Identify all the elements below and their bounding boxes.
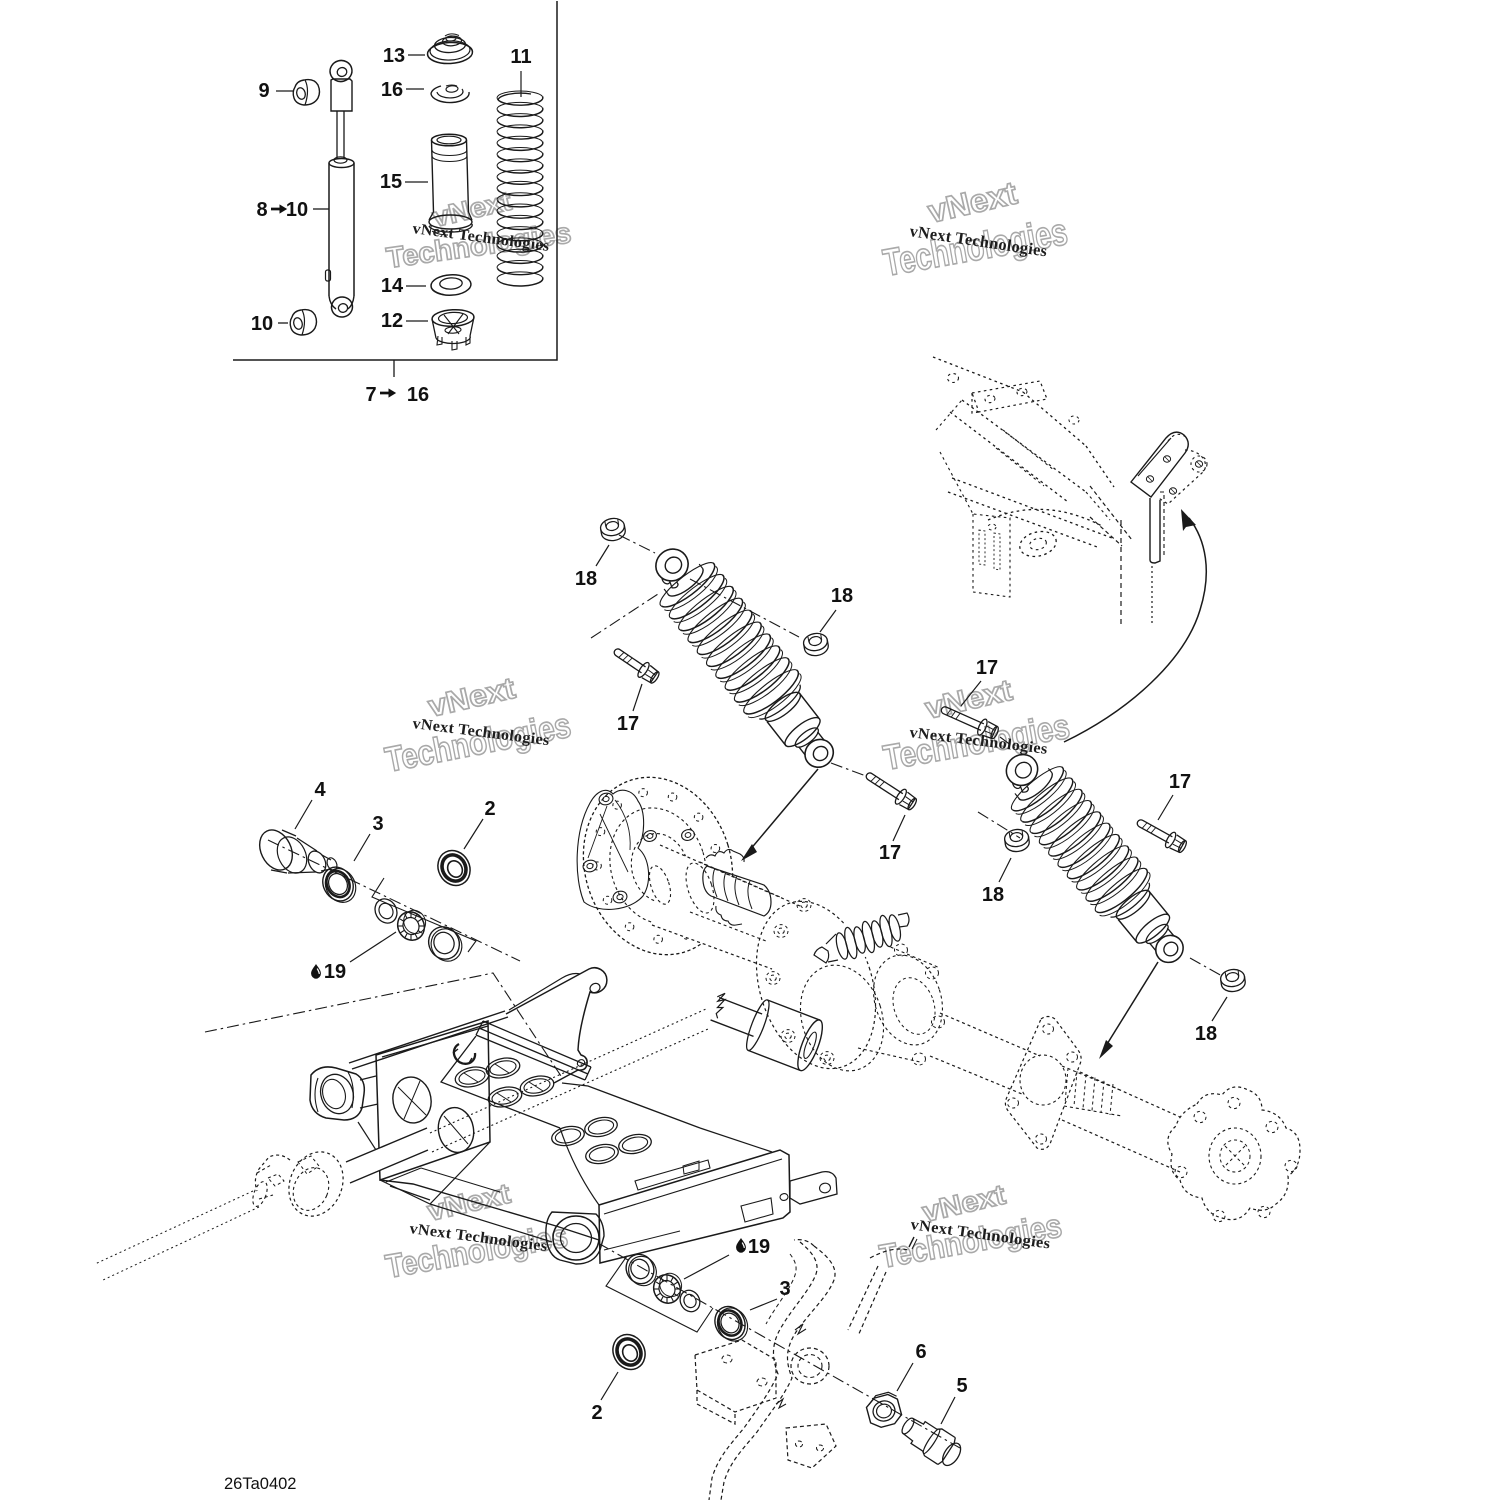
svg-text:13: 13 bbox=[383, 45, 405, 67]
svg-text:18: 18 bbox=[1195, 1023, 1217, 1045]
svg-text:19: 19 bbox=[748, 1236, 770, 1258]
svg-text:14: 14 bbox=[381, 275, 404, 297]
svg-text:4: 4 bbox=[314, 779, 326, 801]
svg-text:2: 2 bbox=[484, 798, 495, 820]
svg-text:2: 2 bbox=[591, 1402, 602, 1424]
svg-text:18: 18 bbox=[575, 568, 597, 590]
svg-text:12: 12 bbox=[381, 310, 403, 332]
svg-text:16: 16 bbox=[381, 79, 403, 101]
svg-text:15: 15 bbox=[380, 171, 402, 193]
svg-text:7: 7 bbox=[365, 384, 376, 406]
svg-text:18: 18 bbox=[982, 884, 1004, 906]
svg-text:17: 17 bbox=[976, 657, 998, 679]
svg-text:17: 17 bbox=[1169, 771, 1191, 793]
svg-text:3: 3 bbox=[779, 1278, 790, 1300]
svg-text:8: 8 bbox=[256, 199, 267, 221]
svg-text:5: 5 bbox=[956, 1375, 967, 1397]
svg-text:3: 3 bbox=[372, 813, 383, 835]
svg-text:17: 17 bbox=[617, 713, 639, 735]
svg-text:26Ta0402: 26Ta0402 bbox=[224, 1475, 297, 1493]
svg-text:10: 10 bbox=[286, 199, 308, 221]
svg-text:16: 16 bbox=[407, 384, 429, 406]
svg-text:18: 18 bbox=[831, 585, 853, 607]
svg-text:19: 19 bbox=[324, 961, 346, 983]
svg-text:11: 11 bbox=[510, 46, 531, 68]
svg-text:9: 9 bbox=[258, 80, 269, 102]
svg-text:17: 17 bbox=[879, 842, 901, 864]
svg-text:6: 6 bbox=[915, 1341, 926, 1363]
svg-text:10: 10 bbox=[251, 313, 273, 335]
